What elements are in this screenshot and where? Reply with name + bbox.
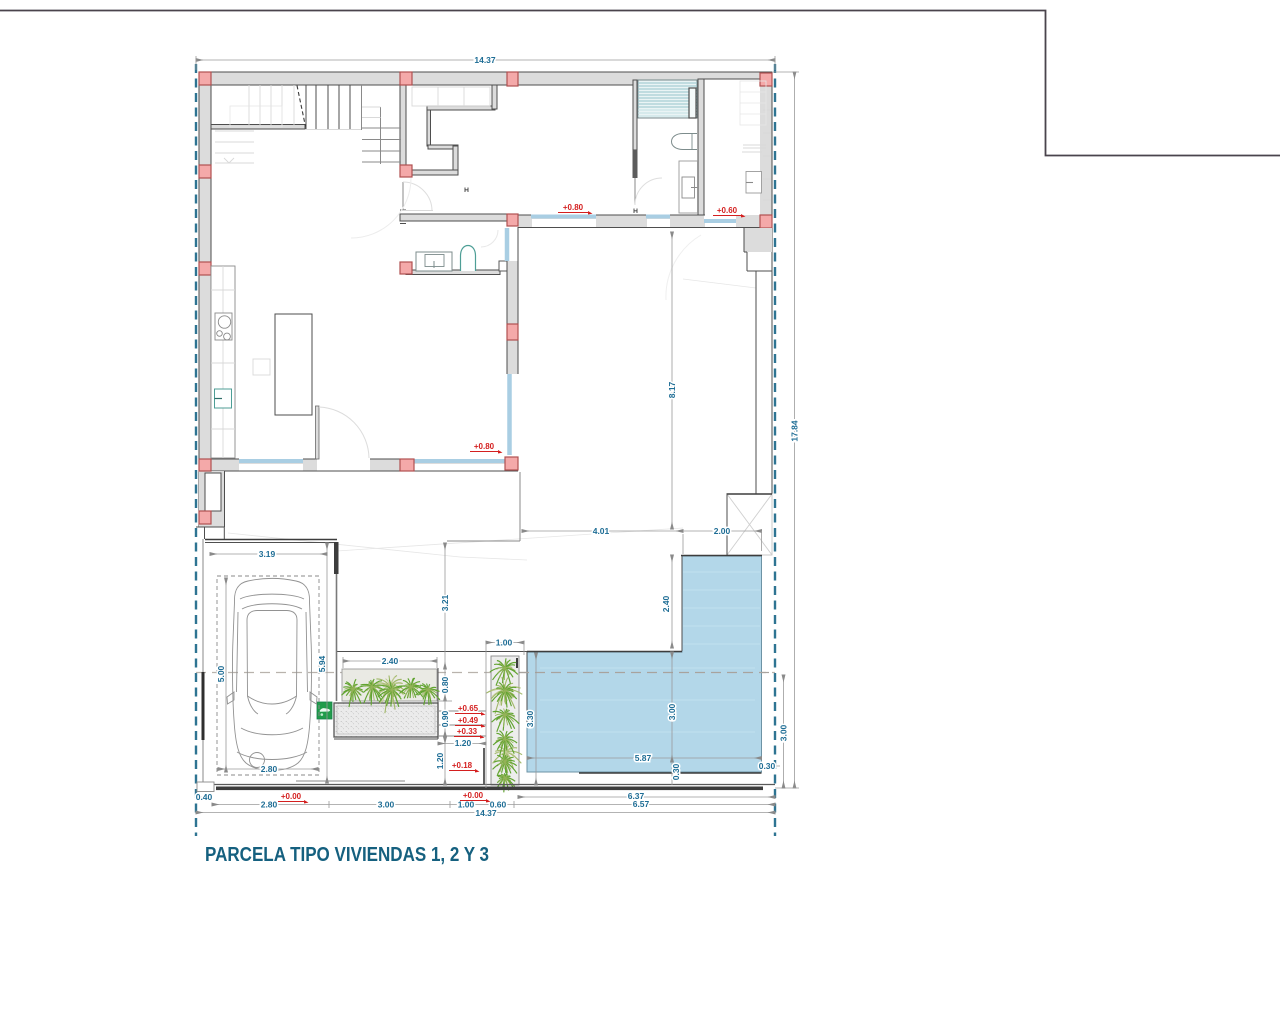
- svg-text:+0.33: +0.33: [457, 727, 478, 736]
- svg-text:14.37: 14.37: [474, 55, 496, 65]
- svg-text:2.80: 2.80: [261, 800, 278, 810]
- svg-text:0.30: 0.30: [759, 761, 776, 771]
- svg-text:+0.60: +0.60: [717, 206, 738, 215]
- svg-text:4.01: 4.01: [593, 526, 610, 536]
- svg-text:5.87: 5.87: [635, 753, 652, 763]
- svg-text:3.30: 3.30: [525, 710, 535, 727]
- svg-text:PARCELA TIPO VIVIENDAS 1, 2 Y: PARCELA TIPO VIVIENDAS 1, 2 Y 3: [205, 843, 489, 866]
- svg-text:5.94: 5.94: [317, 655, 327, 672]
- svg-text:+0.80: +0.80: [474, 442, 495, 451]
- svg-text:3.21: 3.21: [440, 594, 450, 611]
- svg-text:2.40: 2.40: [661, 595, 671, 612]
- svg-text:0.90: 0.90: [440, 710, 450, 727]
- svg-text:+0.00: +0.00: [281, 792, 302, 801]
- svg-text:3.00: 3.00: [378, 800, 395, 810]
- svg-text:17.84: 17.84: [790, 420, 800, 442]
- svg-text:+0.18: +0.18: [452, 761, 473, 770]
- svg-text:2.80: 2.80: [261, 764, 278, 774]
- svg-text:1.20: 1.20: [455, 738, 472, 748]
- svg-text:+0.80: +0.80: [563, 203, 584, 212]
- svg-text:3.00: 3.00: [667, 703, 677, 720]
- svg-text:6.57: 6.57: [633, 799, 650, 809]
- svg-text:3.00: 3.00: [779, 724, 789, 741]
- svg-text:+0.49: +0.49: [458, 716, 479, 725]
- svg-text:8.17: 8.17: [667, 381, 677, 398]
- svg-text:5.00: 5.00: [216, 665, 226, 682]
- svg-text:2.00: 2.00: [714, 526, 731, 536]
- svg-text:0.80: 0.80: [440, 676, 450, 693]
- svg-text:0.40: 0.40: [196, 792, 213, 802]
- svg-text:3.19: 3.19: [259, 549, 276, 559]
- svg-text:0.30: 0.30: [671, 763, 681, 780]
- svg-text:+0.65: +0.65: [458, 704, 479, 713]
- svg-text:2.40: 2.40: [382, 656, 399, 666]
- svg-text:14.37: 14.37: [475, 808, 497, 818]
- svg-text:+0.00: +0.00: [463, 791, 484, 800]
- svg-text:1.00: 1.00: [496, 638, 513, 648]
- svg-text:1.20: 1.20: [435, 752, 445, 769]
